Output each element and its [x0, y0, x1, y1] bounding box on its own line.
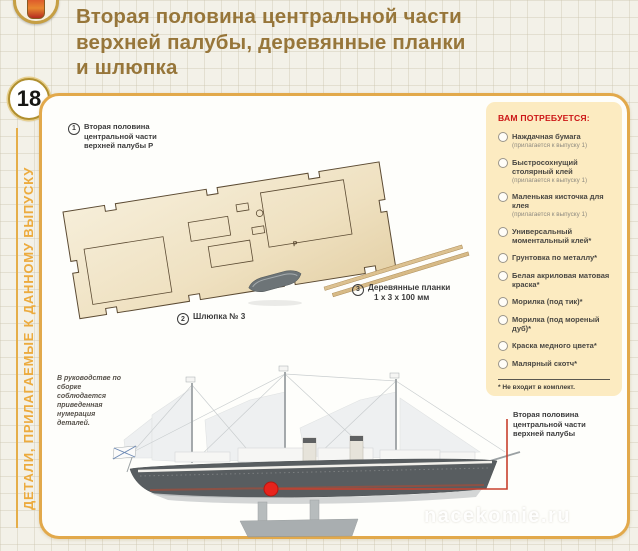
checkbox-circle-icon	[498, 158, 508, 168]
required-item-label: Краска медного цвета*	[512, 341, 597, 350]
part-label-planks: 3 Деревянные планки 1 х 3 х 100 мм	[352, 283, 450, 303]
required-item-label: Морилка (под тик)*	[512, 297, 583, 306]
required-item-note: (прилагается к выпуску 1)	[512, 142, 587, 150]
part-label-text: Шлюпка № 3	[193, 312, 245, 325]
required-item: Морилка (под мореный дуб)*	[498, 315, 612, 333]
required-item-label: Малярный скотч*	[512, 359, 577, 368]
part-number-circle: 2	[177, 313, 189, 325]
magazine-page: Вторая половина центральной части верхне…	[0, 0, 638, 551]
you-will-need-title: ВАМ ПОТРЕБУЕТСЯ:	[498, 113, 612, 123]
checkbox-circle-icon	[498, 271, 508, 281]
footnote-divider	[498, 379, 610, 380]
sidebar-caption: ДЕТАЛИ, ПРИЛАГАЕМЫЕ К ДАННОМУ ВЫПУСКУ	[21, 115, 36, 510]
required-item-label: Наждачная бумага	[512, 132, 581, 141]
part-label-text: верхней палубы Р	[84, 141, 157, 151]
part-label-text: Вторая половина	[84, 122, 157, 132]
required-item-label: Белая акриловая матовая краска*	[512, 271, 609, 289]
required-item: Наждачная бумага (прилагается к выпуску …	[498, 132, 612, 150]
numbering-note: В руководстве по сборке соблюдается прив…	[57, 374, 123, 428]
page-title-line: и шлюпка	[76, 55, 546, 81]
checkbox-circle-icon	[498, 359, 508, 369]
part-label-boat: 2 Шлюпка № 3	[177, 312, 245, 325]
required-item-label: Маленькая кисточка для клея	[512, 192, 604, 210]
checkbox-circle-icon	[498, 315, 508, 325]
checkbox-circle-icon	[498, 192, 508, 202]
footnote-text: * Не входит в комплект.	[498, 384, 612, 391]
page-title: Вторая половина центральной части верхне…	[76, 4, 546, 81]
checkbox-circle-icon	[498, 341, 508, 351]
required-item-label: Универсальный моментальный клей*	[512, 227, 591, 245]
required-item-note: (прилагается к выпуску 1)	[512, 211, 612, 219]
required-item: Белая акриловая матовая краска*	[498, 271, 612, 289]
required-item: Морилка (под тик)*	[498, 297, 612, 307]
you-will-need-box: ВАМ ПОТРЕБУЕТСЯ: Наждачная бумага (прила…	[486, 102, 622, 396]
callout-text: верхней палубы	[513, 429, 586, 439]
required-item: Краска медного цвета*	[498, 341, 612, 351]
required-item-note: (прилагается к выпуску 1)	[512, 177, 612, 185]
part-size-text: 1 х 3 х 100 мм	[368, 293, 450, 303]
required-item-label: Грунтовка по металлу*	[512, 253, 597, 262]
part-number-circle: 1	[68, 123, 80, 135]
required-item: Грунтовка по металлу*	[498, 253, 612, 263]
required-item: Быстросохнущий столярный клей (прилагает…	[498, 158, 612, 185]
sidebar-rule	[16, 128, 18, 528]
checkbox-circle-icon	[498, 132, 508, 142]
required-item: Маленькая кисточка для клея (прилагается…	[498, 192, 612, 219]
required-item-label: Морилка (под мореный дуб)*	[512, 315, 599, 333]
checkbox-circle-icon	[498, 227, 508, 237]
part-label-text: Деревянные планки	[368, 283, 450, 293]
ship-callout-label: Вторая половина центральной части верхне…	[513, 410, 586, 439]
callout-text: Вторая половина	[513, 410, 586, 420]
logo-emblem	[27, 0, 45, 19]
issue-number: 18	[17, 86, 41, 112]
required-item: Универсальный моментальный клей*	[498, 227, 612, 245]
publisher-logo-icon	[13, 0, 59, 24]
watermark: nacekomie.ru	[424, 505, 624, 528]
page-title-line: верхней палубы, деревянные планки	[76, 30, 546, 56]
required-item-label: Быстросохнущий столярный клей	[512, 158, 578, 176]
part-label-deck: 1 Вторая половина центральной части верх…	[68, 122, 157, 151]
checkbox-circle-icon	[498, 253, 508, 263]
required-item: Малярный скотч*	[498, 359, 612, 369]
callout-text: центральной части	[513, 420, 586, 430]
part-label-text: центральной части	[84, 132, 157, 142]
page-title-line: Вторая половина центральной части	[76, 4, 546, 30]
part-number-circle: 3	[352, 284, 364, 296]
checkbox-circle-icon	[498, 297, 508, 307]
